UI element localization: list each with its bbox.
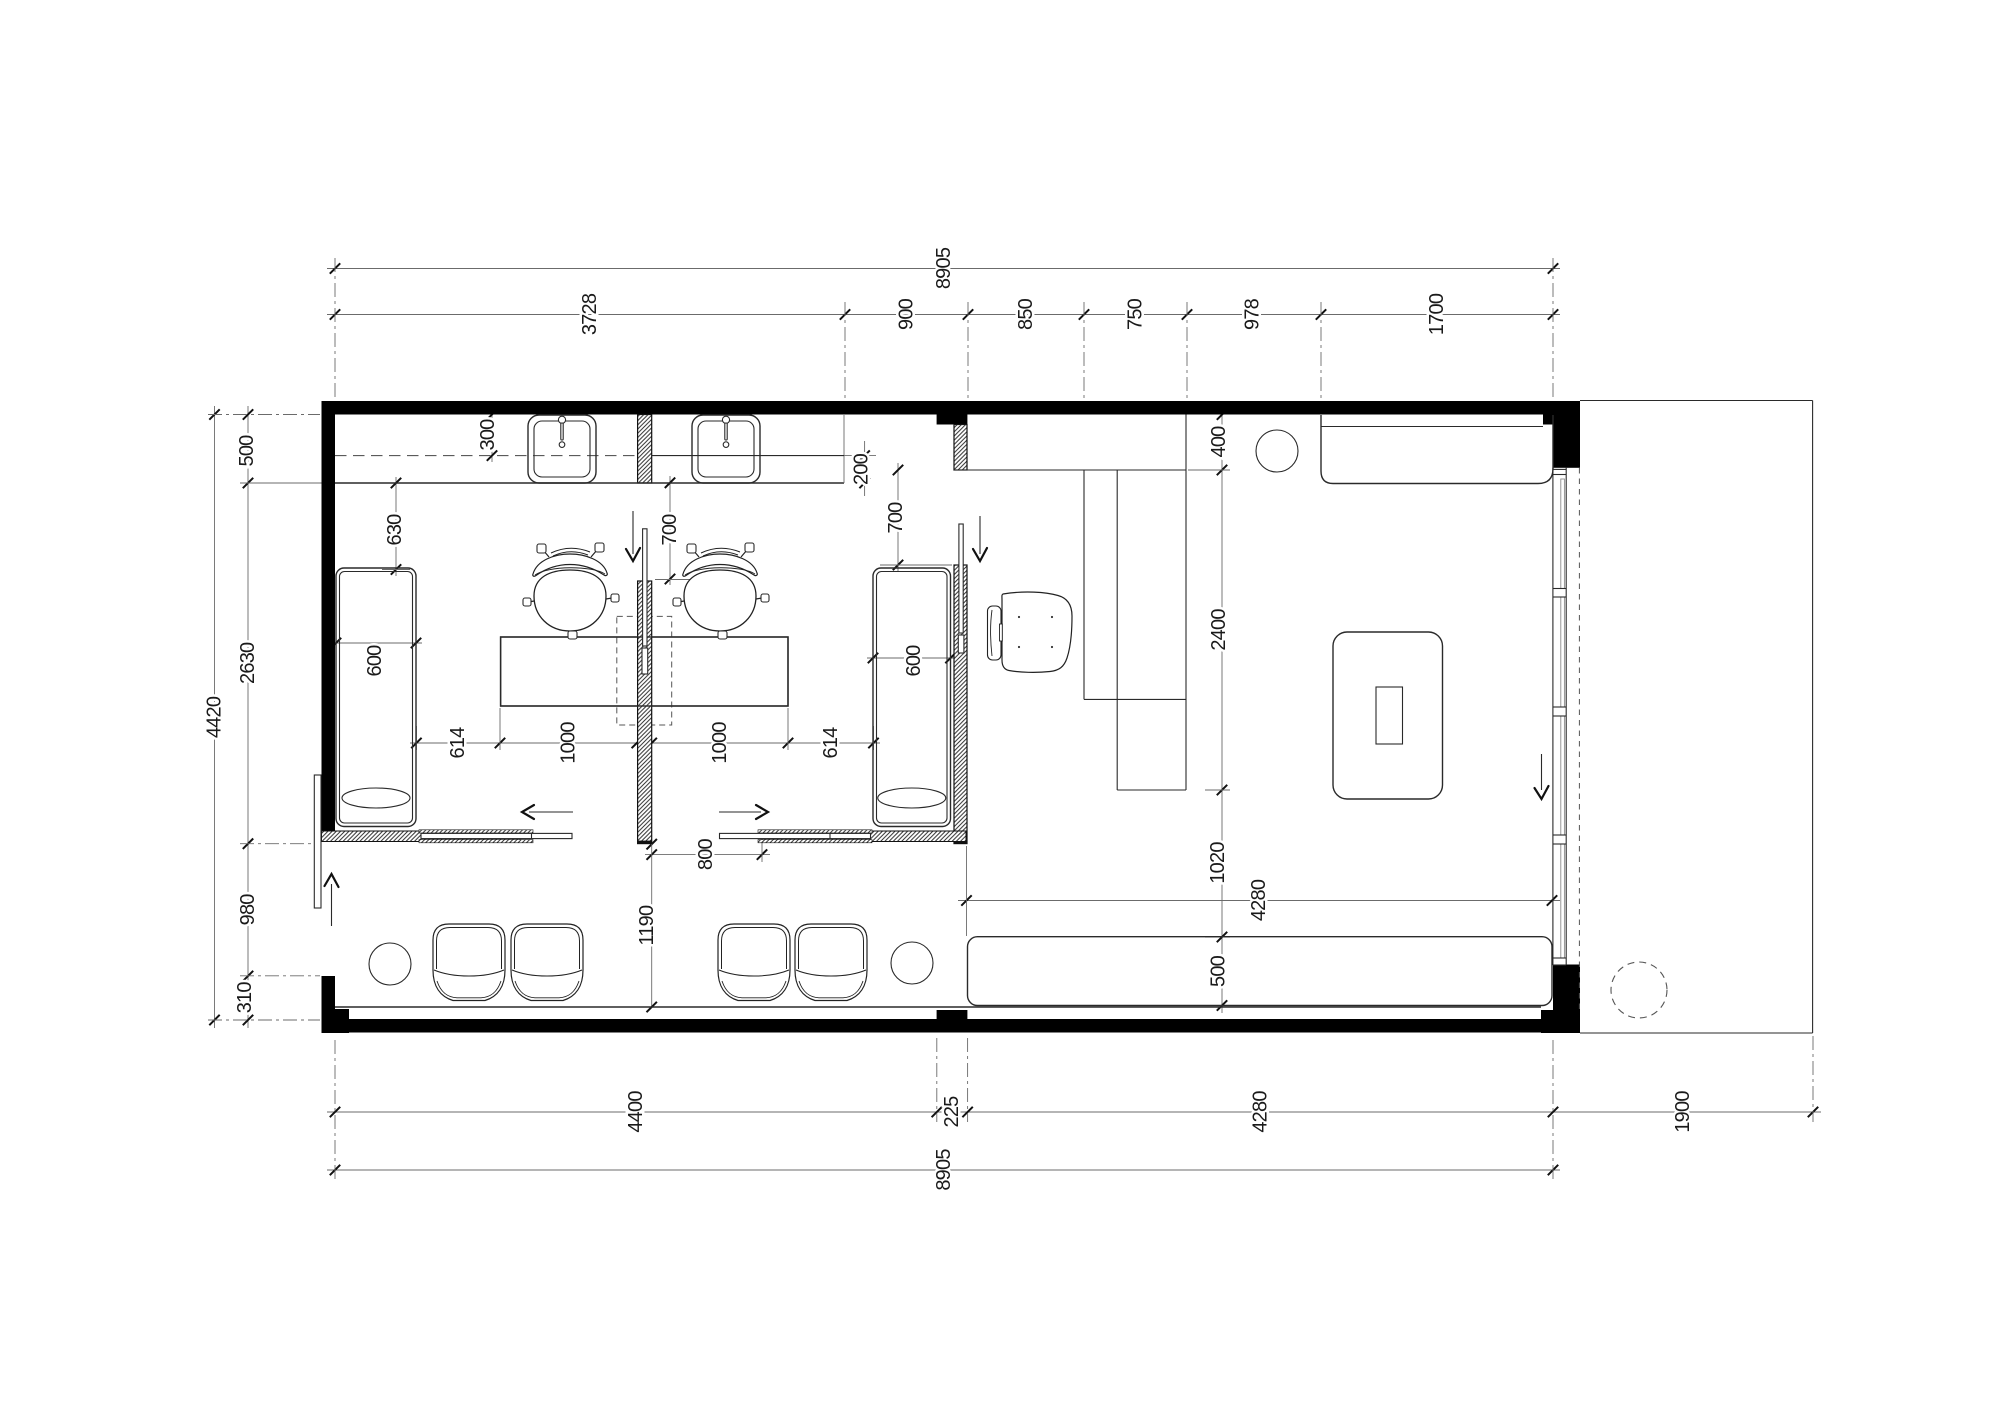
- svg-text:3728: 3728: [579, 293, 601, 335]
- svg-text:2400: 2400: [1208, 609, 1230, 651]
- svg-text:1190: 1190: [636, 905, 658, 945]
- svg-text:1020: 1020: [1207, 842, 1229, 884]
- svg-text:2630: 2630: [237, 642, 259, 684]
- svg-text:900: 900: [896, 298, 918, 330]
- svg-text:600: 600: [903, 645, 925, 677]
- svg-text:225: 225: [941, 1096, 963, 1128]
- svg-text:4280: 4280: [1248, 879, 1270, 921]
- svg-text:850: 850: [1015, 298, 1037, 330]
- svg-text:1000: 1000: [709, 722, 731, 764]
- svg-text:500: 500: [236, 435, 258, 467]
- svg-text:630: 630: [384, 514, 406, 546]
- svg-text:1000: 1000: [557, 722, 579, 764]
- svg-text:614: 614: [820, 727, 842, 759]
- svg-text:600: 600: [364, 645, 386, 677]
- svg-text:8905: 8905: [933, 1149, 955, 1191]
- svg-text:4420: 4420: [204, 696, 226, 738]
- svg-text:4400: 4400: [625, 1091, 647, 1133]
- svg-text:8905: 8905: [933, 247, 955, 289]
- svg-text:1700: 1700: [1426, 293, 1448, 335]
- svg-text:800: 800: [695, 838, 717, 870]
- svg-text:1900: 1900: [1672, 1091, 1694, 1133]
- svg-text:750: 750: [1125, 298, 1147, 330]
- svg-text:980: 980: [237, 894, 259, 926]
- svg-text:700: 700: [885, 502, 907, 534]
- svg-text:978: 978: [1242, 298, 1264, 330]
- svg-text:310: 310: [234, 982, 256, 1014]
- svg-text:4280: 4280: [1250, 1091, 1272, 1133]
- svg-text:700: 700: [659, 514, 681, 546]
- svg-text:400: 400: [1208, 426, 1230, 458]
- svg-text:300: 300: [477, 419, 499, 451]
- svg-text:500: 500: [1208, 955, 1230, 987]
- svg-text:614: 614: [447, 727, 469, 759]
- svg-text:200: 200: [851, 453, 873, 485]
